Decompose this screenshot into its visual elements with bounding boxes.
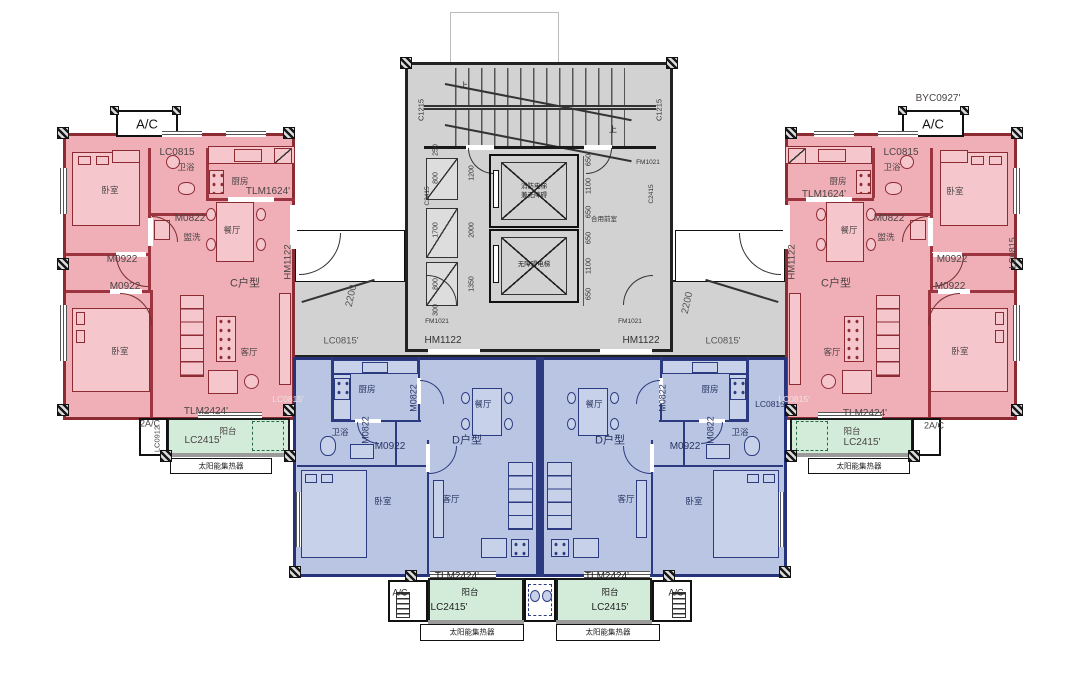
wall — [747, 357, 749, 422]
column-icon — [284, 450, 296, 462]
label-living: 客厅 — [240, 348, 257, 357]
label-hm1122: HM1122 — [424, 336, 461, 346]
stair-landing-line — [424, 105, 656, 107]
label-bedroom: 卧室 — [111, 347, 128, 356]
label-lc0815m: LC0815' — [778, 395, 809, 404]
label-lc2415: LC2415' — [844, 438, 881, 448]
label-m0922: M0922 — [110, 282, 141, 292]
label-stair-up: 上 — [460, 82, 468, 90]
label-unit-d: D户型 — [452, 436, 482, 447]
label-balcony: 阳台 — [219, 427, 236, 436]
window-bedroom1 — [60, 168, 67, 214]
label-stair-up: 上 — [609, 126, 617, 134]
chair-icon — [567, 418, 576, 430]
label-unit-c: C户型 — [821, 279, 851, 290]
chair-icon — [567, 392, 576, 404]
wall — [148, 253, 151, 292]
chair-icon — [610, 392, 619, 404]
stove-icon — [334, 378, 350, 400]
label-lc0815m: LC0815' — [272, 395, 303, 404]
pillow-icon — [321, 474, 333, 483]
washer-position-dashed — [796, 421, 828, 451]
chair-icon — [504, 418, 513, 430]
tv-cabinet-icon — [636, 480, 647, 538]
column-icon — [779, 566, 791, 578]
window-lc0815 — [878, 131, 918, 137]
elevator-1-counterweight — [493, 170, 499, 208]
label-fm1021: FM1021 — [618, 319, 642, 326]
coffee-table-icon — [551, 539, 569, 557]
sink-icon — [234, 149, 262, 162]
label-dim: 650 — [584, 288, 592, 301]
label-dim: 1100 — [584, 258, 592, 274]
column-icon — [666, 57, 678, 69]
label-m0922: M0922 — [670, 442, 701, 452]
label-kitchen: 厨房 — [231, 177, 248, 186]
window-bedroom1 — [1013, 168, 1020, 214]
label-dim: 650 — [584, 232, 592, 245]
tv-cabinet-icon — [789, 293, 801, 385]
label-bath: 卫浴 — [883, 163, 900, 172]
tv-cabinet-icon — [433, 480, 444, 538]
label-wash: 盥洗 — [877, 233, 894, 242]
label-fm1021: FM1021 — [425, 319, 449, 326]
label-lc0815: LC0815 — [159, 148, 194, 158]
label-hm1122: HM1122 — [787, 244, 797, 279]
label-m0822: M0822 — [362, 416, 371, 444]
pillow-icon — [305, 474, 317, 483]
label-lc0815m: LC0815' — [323, 336, 358, 346]
label-dining: 餐厅 — [840, 226, 857, 235]
label-living: 客厅 — [617, 495, 634, 504]
label-dim: 800 — [433, 172, 440, 184]
washer-position-dashed — [252, 421, 284, 451]
bed-icon — [301, 470, 367, 558]
column-icon — [960, 106, 969, 115]
stove-icon — [856, 170, 871, 194]
dining-table-icon — [578, 388, 608, 436]
chair-icon — [206, 238, 216, 251]
column-icon — [57, 404, 69, 416]
washbasin-icon — [706, 444, 730, 459]
armchair-icon — [481, 538, 507, 558]
label-living: 客厅 — [442, 495, 459, 504]
sink-icon — [692, 362, 718, 373]
dresser-icon — [112, 150, 140, 163]
pillow-icon — [76, 312, 85, 325]
label-tlm2424: TLM2424' — [585, 572, 629, 582]
label-c2415: C2415 — [425, 186, 432, 205]
label-balcony: 阳台 — [461, 588, 478, 597]
label-unit-c: C户型 — [230, 279, 260, 290]
label-solar: 太阳能集热器 — [450, 628, 495, 636]
chair-icon — [206, 208, 216, 221]
label-lc2415: LC2415' — [431, 603, 468, 613]
label-dim: 650 — [584, 154, 592, 167]
chair-icon — [461, 392, 470, 404]
label-lobby: 合用前室 — [591, 217, 617, 224]
balcony-center-right — [556, 578, 652, 622]
label-bedroom: 卧室 — [685, 497, 702, 506]
column-icon — [57, 127, 69, 139]
label-m0922: M0922 — [937, 255, 968, 265]
entry-door-hm1122 — [783, 205, 790, 249]
label-elevator-fire2: 兼无障碍 — [521, 193, 547, 200]
label-2ac: 2A/C — [924, 422, 944, 431]
label-bath: 卫浴 — [731, 428, 748, 437]
label-tlm2424: TLM2424' — [843, 409, 887, 419]
window-kitchen — [814, 131, 854, 137]
unit-door-gap-right — [600, 349, 652, 354]
label-c2415: C2415 — [649, 184, 656, 203]
chair-icon — [816, 238, 826, 251]
label-lc0815: LC0815 — [883, 148, 918, 158]
wall — [297, 465, 427, 467]
armchair-icon — [842, 370, 872, 394]
wall — [150, 290, 153, 417]
label-m0922: M0922 — [935, 282, 966, 292]
label-dim: 1200 — [469, 165, 476, 181]
coffee-table-icon — [511, 539, 529, 557]
window-lc0815 — [162, 131, 202, 137]
label-dim: 1700 — [433, 222, 440, 238]
sink-icon — [362, 362, 388, 373]
coffee-table-icon — [216, 316, 236, 362]
label-ac: A/C — [392, 589, 407, 598]
sofa-icon — [508, 462, 533, 530]
entry-door-hm1122 — [290, 205, 297, 249]
label-kitchen: 厨房 — [829, 177, 846, 186]
label-dining: 餐厅 — [223, 226, 240, 235]
window-bedroom2 — [60, 305, 67, 361]
label-lc2415: LC2415' — [592, 603, 629, 613]
label-dim: 250 — [433, 144, 440, 156]
label-lc0815: LC0815 — [1009, 237, 1018, 269]
fridge-icon — [788, 148, 806, 164]
door-gap-bath — [928, 218, 933, 246]
column-icon — [785, 127, 797, 139]
wall — [653, 465, 783, 467]
label-hm1122: HM1122 — [622, 336, 659, 346]
label-solar: 太阳能集热器 — [586, 628, 631, 636]
label-c1215: C1215 — [417, 99, 425, 121]
column-icon — [908, 450, 920, 462]
sofa-icon — [180, 295, 204, 377]
stair-bottom-wall — [424, 146, 656, 149]
column-icon — [405, 570, 417, 582]
label-solar: 太阳能集热器 — [199, 462, 244, 470]
column-icon — [785, 450, 797, 462]
wall — [872, 148, 875, 198]
label-elevator-accessible: 无障碍电梯 — [518, 262, 551, 269]
label-dim: 1100 — [584, 178, 592, 194]
elevator-2-counterweight — [493, 245, 499, 283]
column-icon — [400, 57, 412, 69]
bed-icon — [713, 470, 779, 558]
tv-cabinet-icon — [279, 293, 291, 385]
pillow-icon — [76, 330, 85, 343]
label-bedroom: 卧室 — [951, 347, 968, 356]
sofa-icon — [547, 462, 572, 530]
pillow-icon — [989, 156, 1002, 165]
pillow-icon — [971, 156, 984, 165]
label-bedroom: 卧室 — [946, 187, 963, 196]
label-bedroom: 卧室 — [101, 186, 118, 195]
column-icon — [1011, 404, 1023, 416]
label-c1215: C1215 — [655, 99, 663, 121]
toilet-icon — [744, 436, 760, 456]
column-icon — [289, 566, 301, 578]
label-fm1021: FM1021 — [636, 160, 660, 167]
label-tlm1624: TLM1624' — [802, 190, 846, 200]
label-lc2415: LC2415' — [185, 436, 222, 446]
label-ac-left: A/C — [136, 118, 158, 131]
label-dim: 1350 — [469, 276, 476, 292]
label-lc0912: LC0912 — [153, 426, 161, 452]
label-byc0927: BYC0927' — [916, 94, 961, 104]
toilet-icon — [178, 182, 195, 195]
chair-icon — [461, 418, 470, 430]
unit-door-gap-left — [428, 349, 480, 354]
label-m0922: M0922 — [107, 255, 138, 265]
fixture-icon — [530, 590, 540, 602]
window-bedroom2 — [1013, 305, 1020, 361]
label-bedroom: 卧室 — [374, 497, 391, 506]
label-balcony: 阳台 — [843, 427, 860, 436]
toilet-icon — [320, 436, 336, 456]
dresser-icon — [940, 150, 968, 163]
column-icon — [160, 450, 172, 462]
label-dim: 2000 — [469, 222, 476, 238]
coffee-table-icon — [844, 316, 864, 362]
label-tlm1624: TLM1624' — [246, 187, 290, 197]
washbasin-icon — [350, 444, 374, 459]
chair-icon — [816, 208, 826, 221]
pillow-icon — [96, 156, 109, 165]
fridge-icon — [274, 148, 292, 164]
column-icon — [663, 570, 675, 582]
label-m0822: M0822 — [707, 416, 716, 444]
dining-table-icon — [472, 388, 502, 436]
label-dining: 餐厅 — [474, 400, 491, 409]
label-ac-right: A/C — [922, 118, 944, 131]
label-tlm2424: TLM2424' — [184, 407, 228, 417]
label-dim: 800 — [433, 278, 440, 290]
pillow-icon — [78, 156, 91, 165]
label-bath: 卫浴 — [177, 163, 194, 172]
label-living: 客厅 — [823, 348, 840, 357]
label-wash: 盥洗 — [183, 233, 200, 242]
pillow-icon — [995, 330, 1004, 343]
service-shaft-2 — [426, 208, 458, 258]
column-icon — [283, 404, 295, 416]
chair-icon — [504, 392, 513, 404]
label-tlm2424: TLM2424' — [435, 572, 479, 582]
balcony-center-left — [428, 578, 524, 622]
sofa-icon — [876, 295, 900, 377]
balcony-sill — [790, 453, 913, 457]
toilet-icon — [885, 182, 902, 195]
label-lc0815m: LC0815' — [705, 336, 740, 346]
label-m0822: M0822 — [874, 214, 905, 224]
label-balcony: 阳台 — [601, 588, 618, 597]
column-icon — [57, 258, 69, 270]
sink-icon — [818, 149, 846, 162]
chair-icon — [610, 418, 619, 430]
pillow-icon — [747, 474, 759, 483]
stove-icon — [209, 170, 224, 194]
column-icon — [1011, 127, 1023, 139]
window-kitchen — [226, 131, 266, 137]
party-wall — [536, 357, 544, 577]
balcony-sill — [167, 453, 290, 457]
armchair-icon — [573, 538, 599, 558]
chair-icon — [256, 208, 266, 221]
label-bath: 卫浴 — [331, 428, 348, 437]
label-kitchen: 厨房 — [358, 385, 375, 394]
side-table-icon — [244, 374, 259, 389]
pillow-icon — [995, 312, 1004, 325]
stove-icon — [730, 378, 746, 400]
stair-landing-line2 — [424, 108, 656, 110]
label-dining: 餐厅 — [585, 400, 602, 409]
shaft-overrun-outline — [450, 12, 559, 64]
column-icon — [172, 106, 181, 115]
label-elevator-fire: 消防电梯 — [521, 184, 547, 191]
stair-flight-lower — [455, 110, 625, 146]
chair-icon — [866, 238, 876, 251]
pillow-icon — [763, 474, 775, 483]
floor-plan: BYC0927' A/C A/C LC0815 卫浴 厨房 TLM1624' M… — [0, 0, 1080, 686]
fixture-icon — [542, 590, 552, 602]
armchair-icon — [208, 370, 238, 394]
label-solar: 太阳能集热器 — [837, 462, 882, 470]
stair-flight-upper — [455, 68, 625, 105]
label-ac: A/C — [668, 589, 683, 598]
column-icon — [785, 404, 797, 416]
column-icon — [110, 106, 119, 115]
label-hm1122: HM1122 — [283, 244, 293, 279]
label-m0822: M0822 — [410, 384, 419, 412]
label-unit-d: D户型 — [595, 436, 625, 447]
label-m0822: M0822 — [175, 214, 206, 224]
label-m0922: M0922 — [375, 442, 406, 452]
label-kitchen: 厨房 — [701, 385, 718, 394]
column-icon — [283, 127, 295, 139]
side-table-icon — [821, 374, 836, 389]
label-m0822: M0822 — [659, 384, 668, 412]
label-dim: 300 — [433, 304, 440, 316]
column-icon — [898, 106, 907, 115]
chair-icon — [256, 238, 266, 251]
door-gap-tlm1624 — [228, 197, 274, 202]
